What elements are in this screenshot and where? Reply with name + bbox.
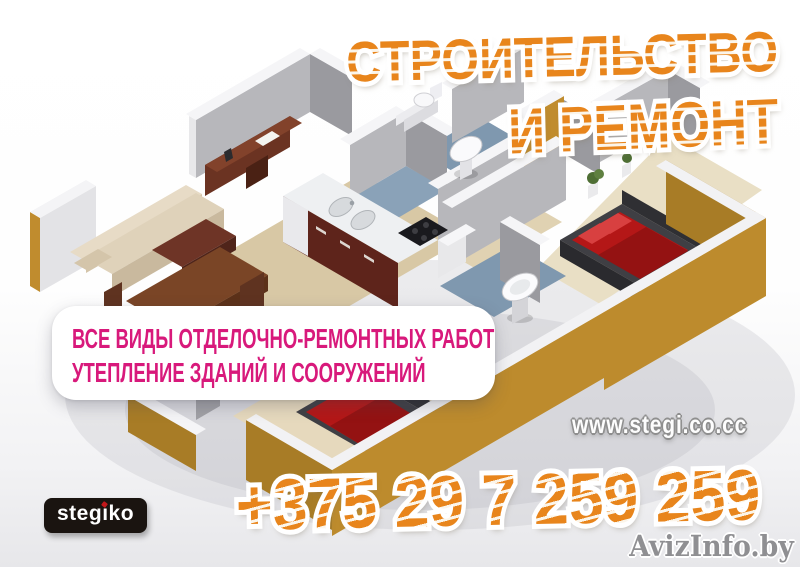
services-line1: ВСЕ ВИДЫ ОТДЕЛОЧНО-РЕМОНТНЫХ РАБОТ bbox=[72, 322, 342, 356]
poster-root: СТРОИТЕЛЬСТВО СТРОИТЕЛЬСТВО И РЕМОНТ И Р… bbox=[0, 0, 800, 567]
services-box: ВСЕ ВИДЫ ОТДЕЛОЧНО-РЕМОНТНЫХ РАБОТ УТЕПЛ… bbox=[52, 306, 495, 400]
title-line2: И РЕМОНТ И РЕМОНТ bbox=[371, 89, 779, 169]
services-line2: УТЕПЛЕНИЕ ЗДАНИЙ И СООРУЖЕНИЙ bbox=[72, 356, 342, 390]
logo-text: stegıko bbox=[57, 502, 134, 525]
main-title: СТРОИТЕЛЬСТВО СТРОИТЕЛЬСТВО И РЕМОНТ И Р… bbox=[270, 24, 778, 153]
watermark-text: AvizInfo.by bbox=[629, 529, 794, 563]
website-text: www.stegi.co.cc bbox=[572, 411, 747, 440]
title-line1: СТРОИТЕЛЬСТВО СТРОИТЕЛЬСТВО bbox=[346, 24, 779, 92]
logo-badge: stegıko bbox=[44, 498, 147, 533]
